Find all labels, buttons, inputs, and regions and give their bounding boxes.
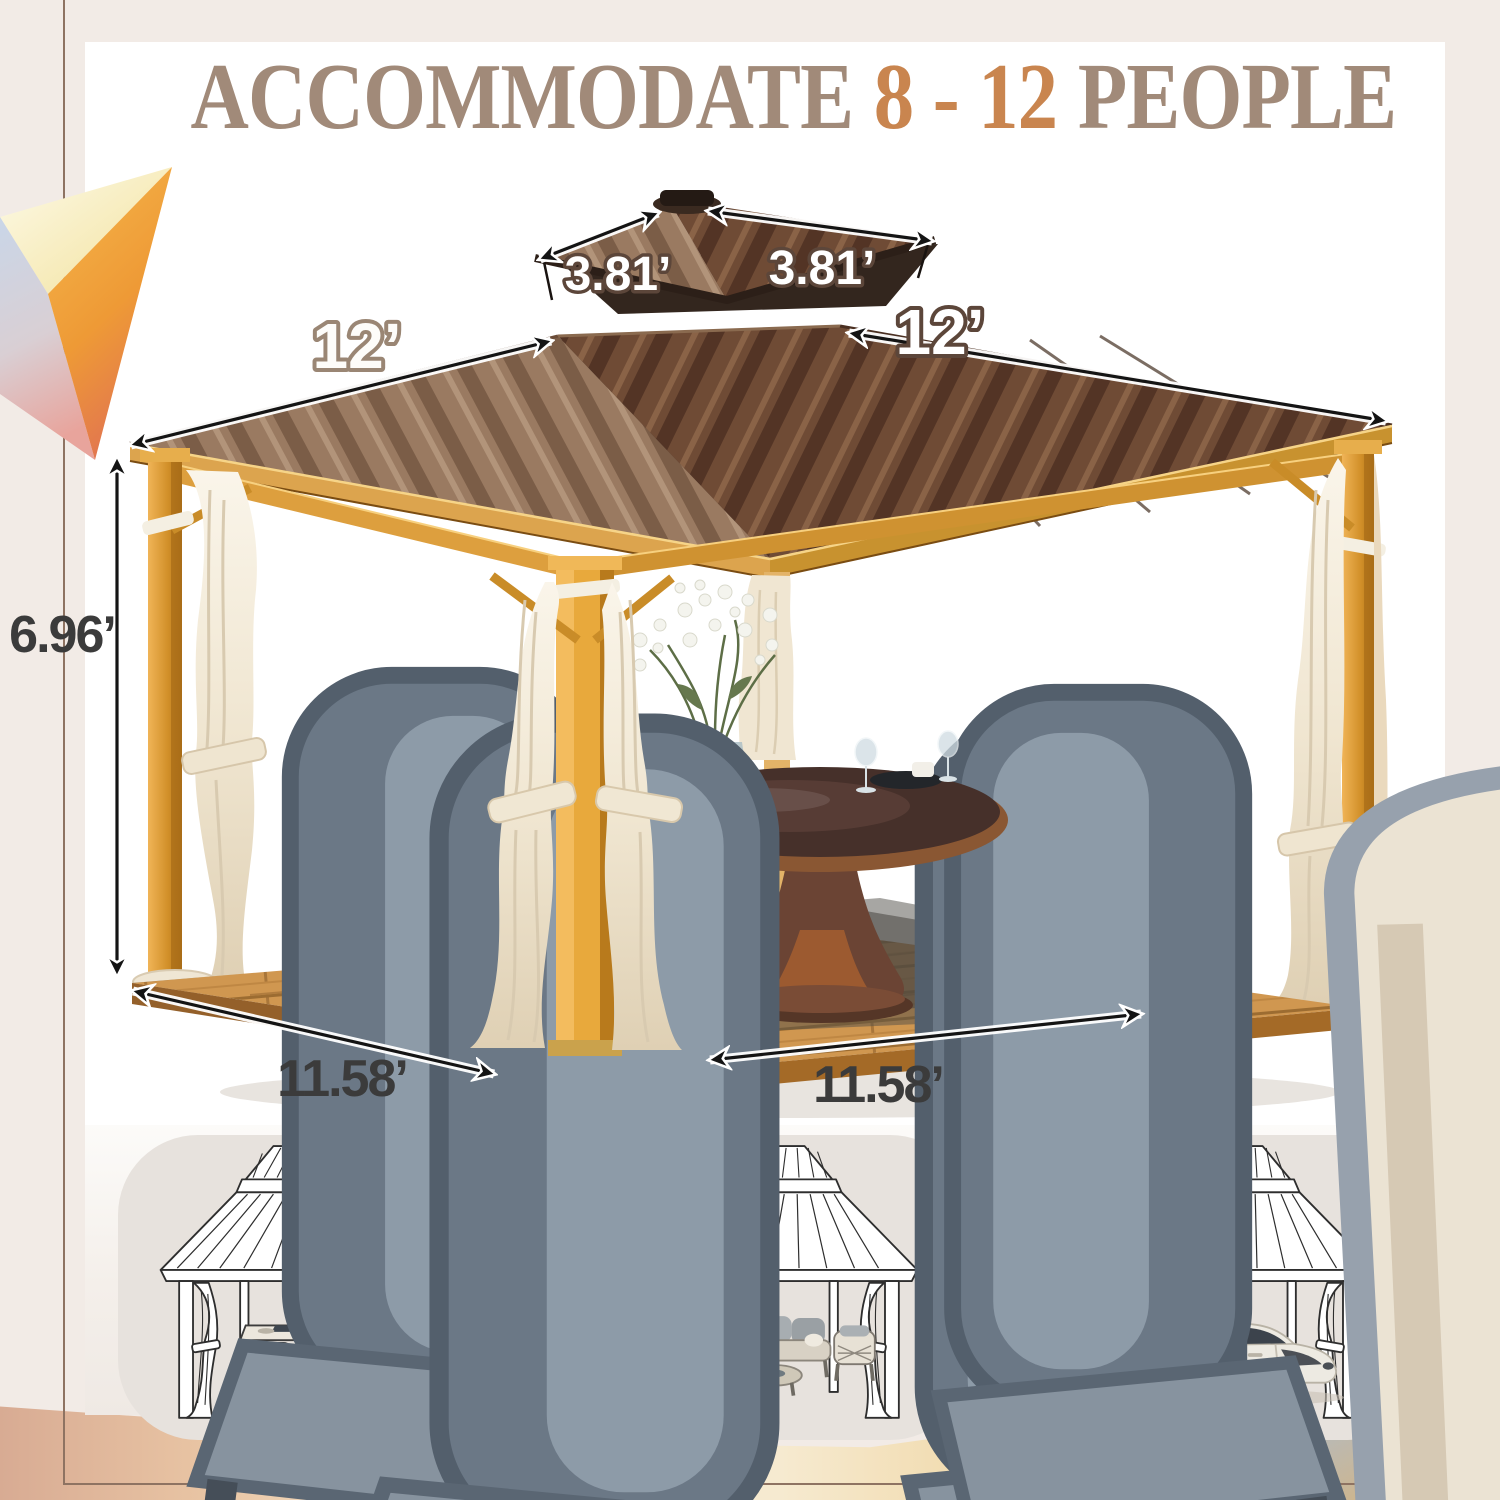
lounge-furniture-illustration [675,1316,875,1395]
title-capacity-range: 8 - 12 [874,45,1057,149]
title-suffix: PEOPLE [1078,45,1396,149]
gazebo-line-art-carport [1038,1135,1428,1440]
usage-card-dining [118,1135,488,1440]
usage-card-carport [1038,1135,1428,1440]
product-infographic-page: { "title": { "prefix": "ACCOMMODATE", "r… [0,0,1500,1500]
prism-decoration [0,162,185,477]
bottom-border-line [63,1483,1500,1485]
gazebo-line-art-dining [118,1135,488,1440]
gazebo-line-art-lounge [580,1135,970,1440]
usage-card-lounge [580,1135,970,1440]
white-content-panel [85,42,1445,1127]
title-prefix: ACCOMMODATE [191,45,854,149]
car-illustration [1126,1324,1344,1406]
page-title: ACCOMMODATE8 - 12PEOPLE [180,48,1350,147]
